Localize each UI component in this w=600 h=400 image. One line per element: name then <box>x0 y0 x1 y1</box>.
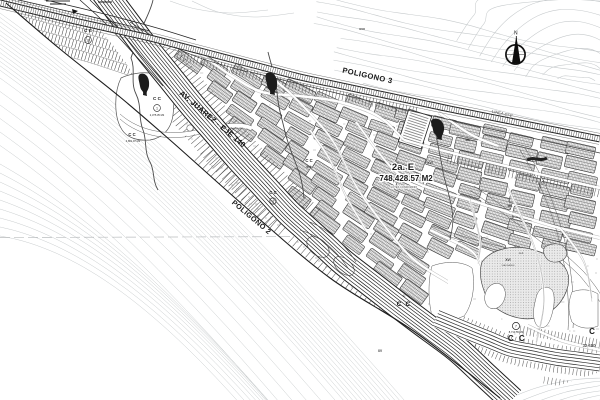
svg-text:⊕⊕: ⊕⊕ <box>306 165 312 169</box>
svg-text:2a. E: 2a. E <box>392 162 414 173</box>
svg-text:XVI: XVI <box>427 161 433 165</box>
svg-text:C: C <box>589 327 595 336</box>
svg-text:A-4: A-4 <box>519 251 524 255</box>
svg-text:3: 3 <box>272 200 274 204</box>
svg-text:C C: C C <box>305 158 312 163</box>
svg-text:LOTES CONDOMINIO: LOTES CONDOMINIO <box>391 185 417 189</box>
svg-text:VIALIDADES: VIALIDADES <box>502 264 515 267</box>
svg-text:XVII: XVII <box>359 27 365 31</box>
svg-text:N: N <box>514 31 518 37</box>
svg-text:C C: C C <box>84 28 93 33</box>
svg-text:ML: ML <box>466 138 471 142</box>
svg-text:748,428.57 M2: 748,428.57 M2 <box>379 174 433 183</box>
svg-text:1: 1 <box>156 107 158 111</box>
svg-text:C C: C C <box>397 301 412 308</box>
svg-text:7: 7 <box>515 325 517 329</box>
svg-text:32,450: 32,450 <box>583 343 596 348</box>
svg-text:C C: C C <box>128 132 135 137</box>
svg-text:C C: C C <box>153 96 162 101</box>
svg-text:C C: C C <box>508 334 526 343</box>
svg-text:C C: C C <box>269 190 276 195</box>
svg-text:8,713.55 M2: 8,713.55 M2 <box>509 330 524 334</box>
svg-text:XVI: XVI <box>505 258 510 262</box>
svg-text:18: 18 <box>86 39 90 43</box>
svg-text:2,375.35 M2: 2,375.35 M2 <box>150 113 165 117</box>
svg-text:4,861.97 M2: 4,861.97 M2 <box>126 139 141 143</box>
svg-text:ML: ML <box>508 204 513 208</box>
